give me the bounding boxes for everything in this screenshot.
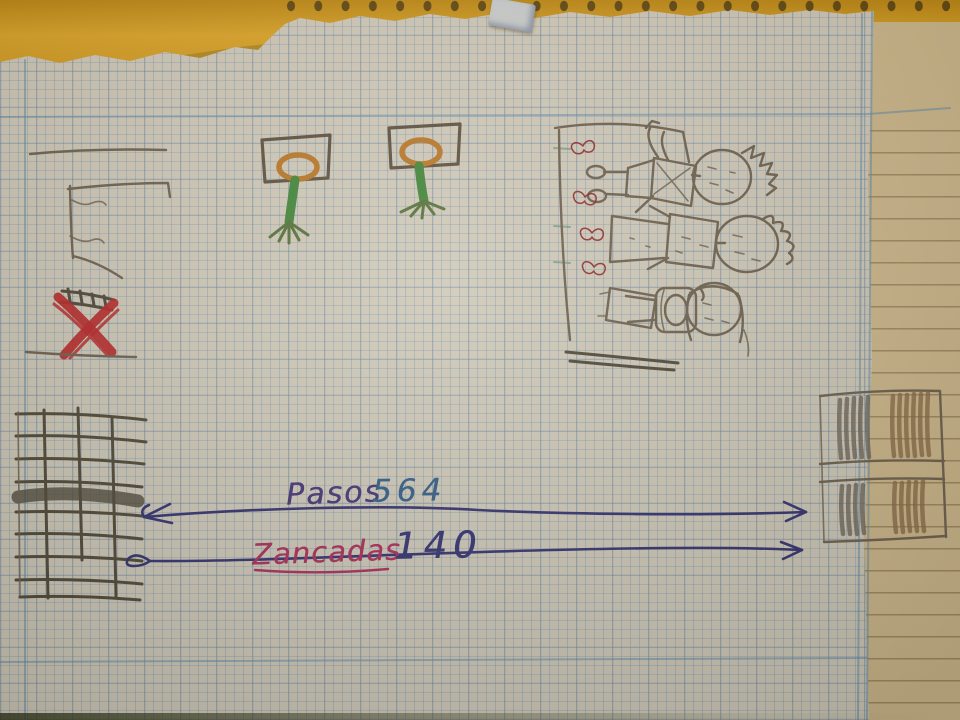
arrow-pasos <box>142 502 806 523</box>
basketball-hoop-1 <box>262 135 330 243</box>
zancadas-value: 140 <box>394 526 483 565</box>
sketch-drawing <box>0 0 960 720</box>
basketball-hoop-2 <box>389 124 460 218</box>
grid-strong-lines <box>0 12 950 720</box>
red-bows <box>571 139 606 275</box>
goal-with-flags <box>30 150 170 279</box>
notebook-photo: Pasos 564 Zancadas 140 <box>0 0 960 720</box>
pasos-label: Pasos <box>286 477 383 510</box>
child-2 <box>610 206 794 272</box>
child-1 <box>587 121 777 212</box>
child-3 <box>598 283 749 356</box>
baseline-left <box>26 352 136 357</box>
brick-wall-left <box>16 408 146 600</box>
pasos-value: 564 <box>372 475 447 507</box>
zancadas-label: Zancadas <box>252 535 402 569</box>
brick-wall-right <box>820 391 946 542</box>
